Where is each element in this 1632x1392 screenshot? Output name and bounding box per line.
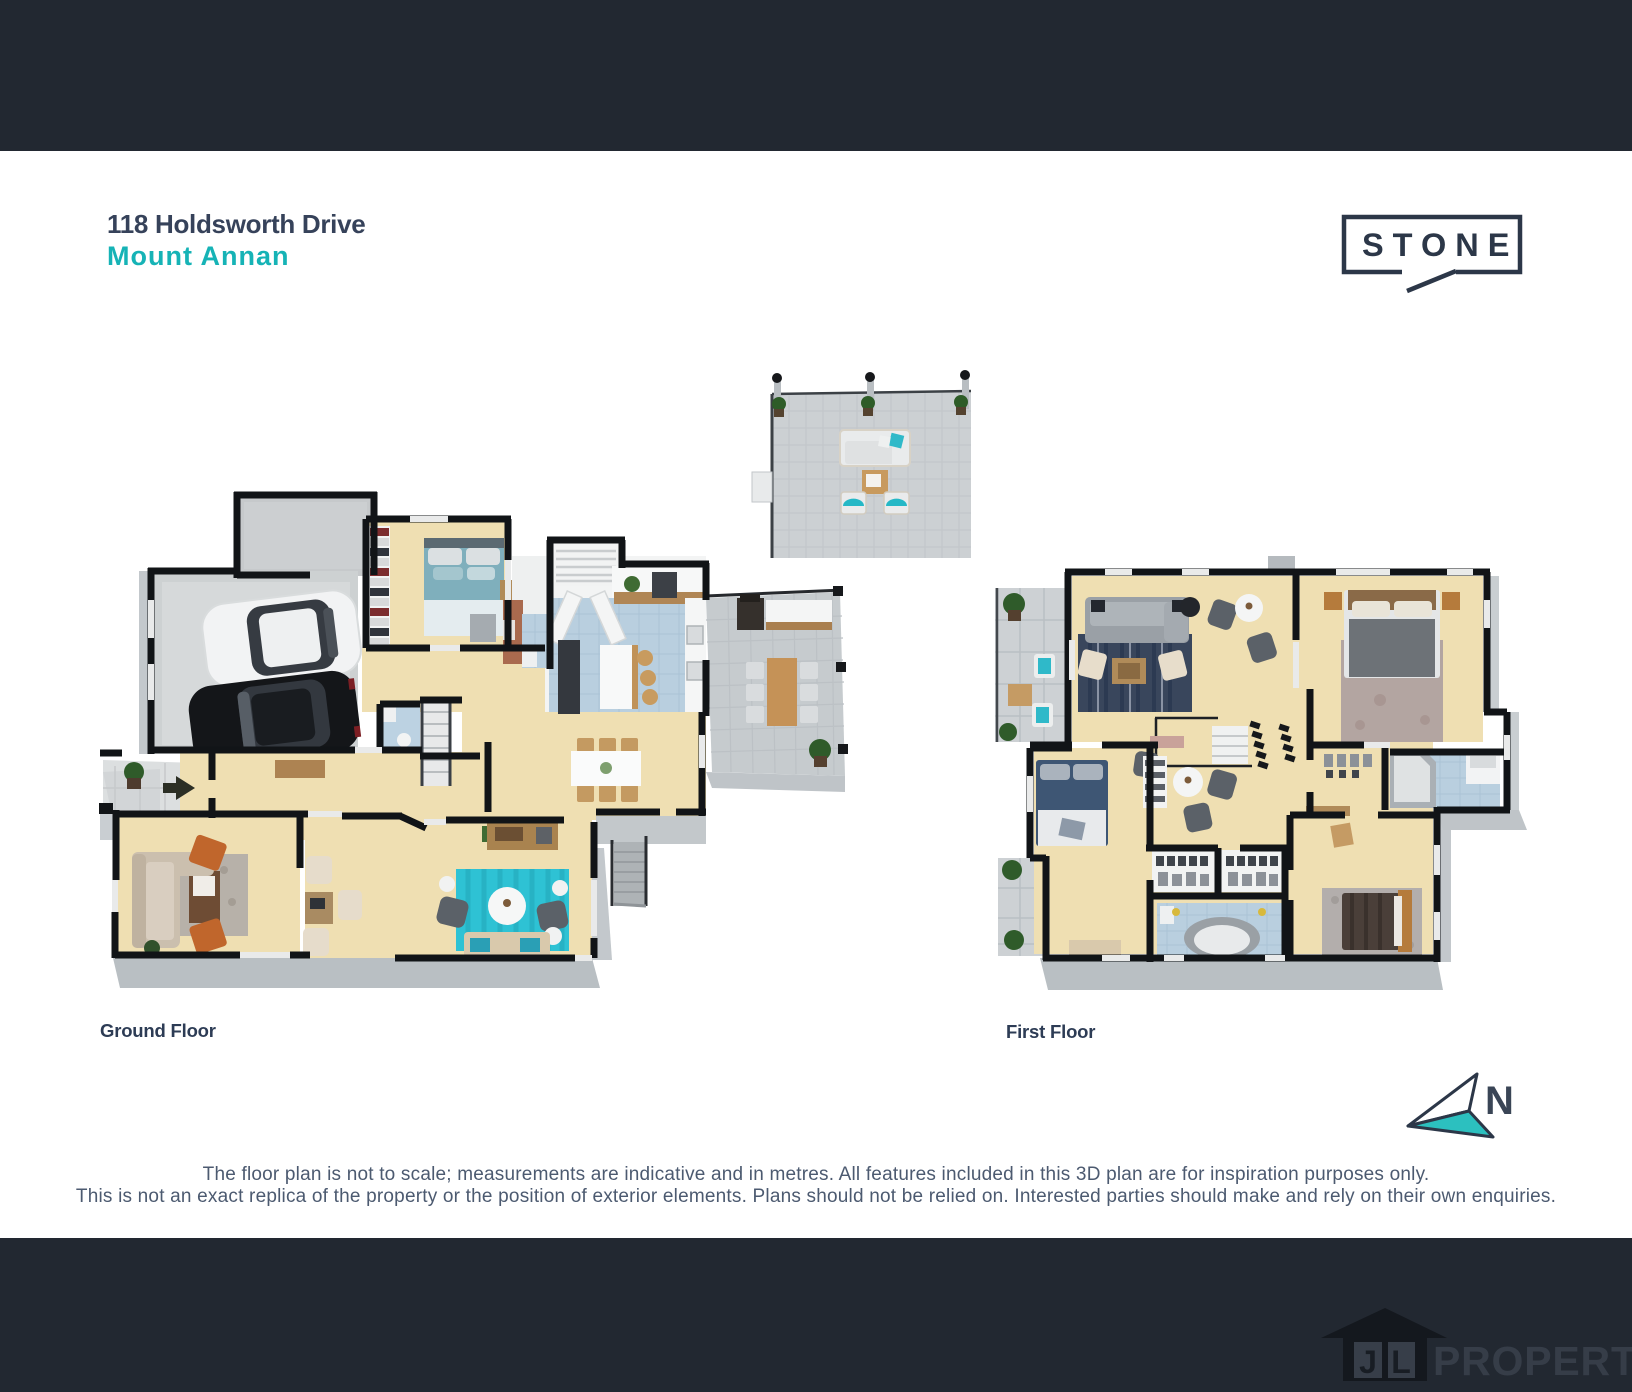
svg-text:STONE: STONE — [1362, 227, 1518, 263]
svg-text:N: N — [1485, 1079, 1514, 1123]
